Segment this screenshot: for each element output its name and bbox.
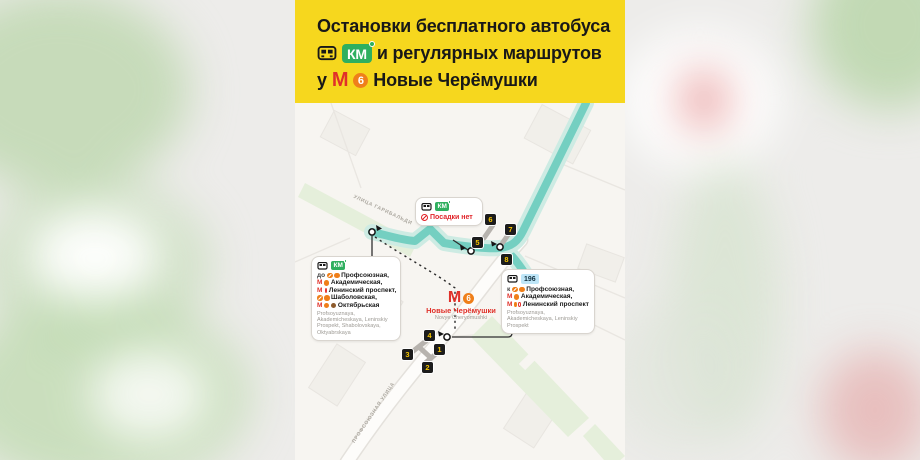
stop-badge-3: 3 — [402, 349, 413, 360]
mcc-line-icon — [518, 302, 521, 307]
station-name: Академическая, — [521, 293, 572, 300]
km-badge-label: КМ — [347, 46, 367, 62]
station-name: Октябрьская — [338, 302, 380, 309]
km-badge-dot-icon — [344, 259, 348, 263]
header-station-name: Новые Черёмушки — [373, 70, 537, 91]
header-line1: Остановки бесплатного автобуса — [317, 13, 625, 40]
stop-badge-5: 5 — [472, 237, 483, 248]
bg-white-blob — [90, 350, 210, 440]
direction-prefix: до — [317, 272, 325, 279]
poster-card: Остановки бесплатного автобуса КМ и регу… — [295, 0, 625, 460]
stop-badge-4: 4 — [424, 330, 435, 341]
station-row: до Профсоюзная, — [317, 272, 395, 279]
metro-m-icon: М — [317, 302, 322, 309]
bus-icon — [317, 262, 328, 270]
station-closed-icon — [512, 287, 518, 293]
station-name: Профсоюзная, — [526, 286, 574, 293]
station-row: М Академическая, — [317, 279, 395, 286]
no-boarding-icon — [421, 214, 428, 221]
metro-m-icon: М — [507, 293, 512, 300]
route196-callout: 196 к Профсоюзная, М Академическая, М — [501, 269, 595, 334]
km-route-badge: КМ — [435, 202, 449, 211]
line6-icon — [324, 280, 330, 286]
line6-icon — [514, 294, 520, 300]
line5-icon — [331, 303, 337, 309]
stop-badge-6: 6 — [485, 214, 496, 225]
header-line1-text: Остановки бесплатного автобуса — [317, 16, 610, 37]
no-boarding-text: Посадки нет — [430, 214, 473, 221]
header-line2-text: и регулярных маршрутов — [377, 43, 602, 64]
scene: Остановки бесплатного автобуса КМ и регу… — [0, 0, 920, 460]
km-stations-callout: КМ до Профсоюзная, М Академическая, М — [311, 256, 401, 341]
metro-m-icon: М — [317, 287, 322, 294]
bg-green-blob — [0, 0, 190, 190]
line6-icon — [324, 295, 330, 301]
map-area: УЛИЦА ГАРИБАЛЬДИ ПРОФСОЮЗНАЯ УЛИЦА 1 2 3… — [295, 103, 625, 460]
stop-badge-1: 1 — [434, 344, 445, 355]
km-callout-head: КМ — [317, 261, 395, 270]
station-name: Шаболовская, — [331, 294, 377, 301]
no-boarding-callout: КМ Посадки нет — [415, 197, 483, 226]
metro-m-icon: М — [317, 279, 322, 286]
bg-pink-blob — [820, 350, 920, 460]
line6-icon — [514, 302, 517, 308]
header-line3: у М 6 Новые Черёмушки — [317, 67, 625, 94]
km-badge-dot-icon — [369, 41, 375, 47]
bus-icon — [421, 203, 432, 211]
station-row: к Профсоюзная, — [507, 286, 589, 293]
km-route-badge: КМ — [342, 44, 372, 63]
km-badge-label: КМ — [438, 203, 447, 210]
bg-red-blob — [682, 70, 726, 130]
bg-white-blob — [30, 210, 160, 300]
bg-gray-blob — [610, 300, 750, 450]
station-row: М Ленинский проспект — [507, 301, 589, 308]
bg-green-blob — [810, 0, 920, 110]
stop-badge-7: 7 — [505, 224, 516, 235]
line6-icon — [334, 273, 340, 279]
station-closed-icon — [327, 273, 333, 279]
line6-icon — [324, 303, 330, 309]
route196-translit: Profsoyuznaya, Akademicheskaya, Leninski… — [507, 310, 589, 329]
metro-logo-icon: М — [332, 69, 348, 92]
station-row: М Академическая, — [507, 293, 589, 300]
stop-badge-8: 8 — [501, 254, 512, 265]
station-name: Ленинский проспект — [523, 301, 589, 308]
route196-badge: 196 — [521, 274, 539, 284]
stop-badge-2: 2 — [422, 362, 433, 373]
header-line2: КМ и регулярных маршрутов — [317, 40, 625, 67]
station-row: М Октябрьская — [317, 302, 395, 309]
station-name: Академическая, — [331, 279, 382, 286]
direction-prefix: к — [507, 286, 510, 293]
station-closed-icon — [317, 295, 323, 301]
km-badge-label: КМ — [334, 262, 343, 269]
bus-icon — [317, 46, 337, 61]
km-badge-dot-icon — [448, 200, 452, 204]
line6-icon: 6 — [463, 293, 474, 304]
bus-icon — [507, 275, 518, 283]
km-route-badge: КМ — [331, 261, 345, 270]
km-callout-translit: Profsoyuznaya, Akademicheskaya, Leninski… — [317, 311, 395, 336]
mcc-line-icon — [325, 288, 327, 293]
header-line3-prefix: у — [317, 70, 327, 91]
poster-header: Остановки бесплатного автобуса КМ и регу… — [295, 0, 625, 103]
no-boarding-row: Посадки нет — [421, 214, 477, 221]
metro-m-icon: М — [448, 291, 461, 305]
route196-head: 196 — [507, 274, 589, 284]
line6-icon: 6 — [353, 73, 368, 88]
line6-icon — [519, 287, 525, 293]
station-row: Шаболовская, — [317, 294, 395, 301]
metro-m-icon: М — [507, 301, 512, 308]
station-name: Профсоюзная, — [341, 272, 389, 279]
no-boarding-head: КМ — [421, 202, 477, 211]
